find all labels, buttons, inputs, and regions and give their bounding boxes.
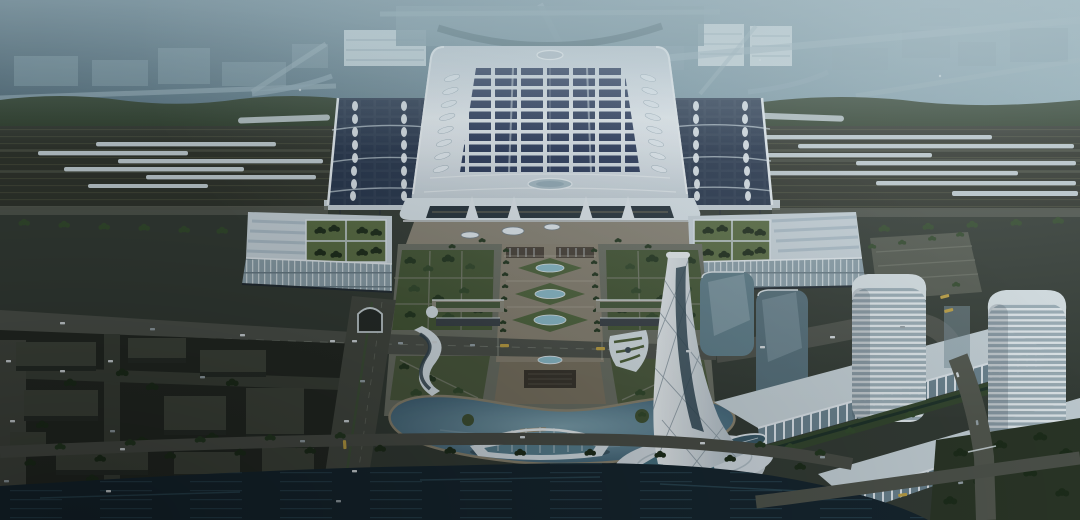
rendering-image: Aerial dusk architectural rendering of a… <box>0 0 1080 520</box>
vignette-overlay <box>0 0 1080 520</box>
station-aerial-rendering: Aerial dusk architectural rendering of a… <box>0 0 1080 520</box>
